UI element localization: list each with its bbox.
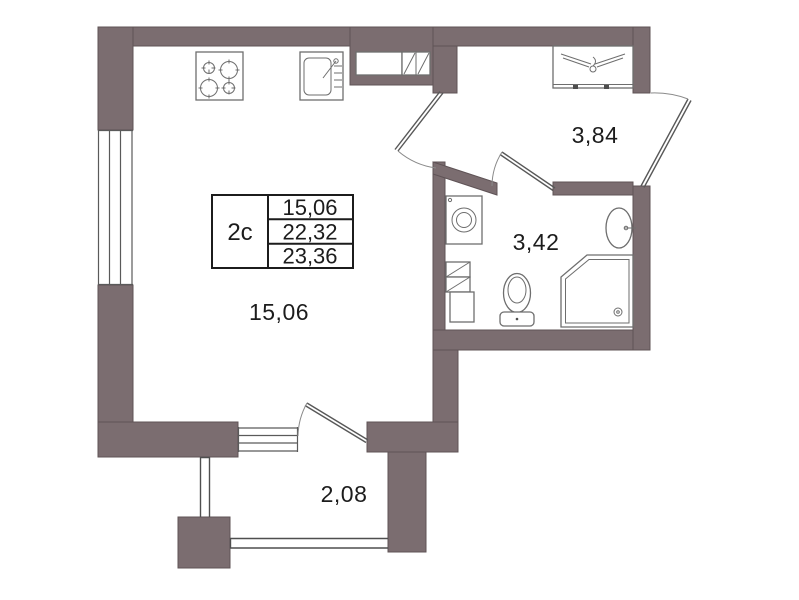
living-room-area-label: 15,06 — [249, 299, 309, 325]
toilet-button — [516, 318, 519, 321]
wardrobe — [553, 46, 633, 89]
hallway-area-label: 3,84 — [572, 122, 619, 148]
floor-plan: 2с 15,06 22,32 23,36 15,06 3,84 3,42 2,0… — [0, 0, 799, 600]
shaft-box — [450, 292, 474, 322]
sink-icon — [300, 52, 343, 100]
wall-niche — [356, 52, 402, 75]
wall-bathroom-top — [553, 182, 633, 195]
wardrobe-body — [553, 46, 633, 88]
bathroom-area-label: 3,42 — [513, 229, 560, 255]
washing-machine-body — [446, 196, 482, 244]
balcony-area-label: 2,08 — [321, 481, 368, 507]
wall-bottom-left — [98, 422, 238, 457]
wall-pillar — [178, 517, 230, 568]
stove-body — [196, 52, 243, 100]
washing-machine-icon — [446, 196, 482, 244]
legend-area-living: 15,06 — [282, 195, 337, 220]
stove-icon — [196, 52, 243, 100]
wall-balcony-right — [388, 452, 426, 552]
legend-unit-label: 2с — [227, 219, 252, 246]
wall-bathroom-right — [633, 186, 650, 350]
wall-left-upper — [98, 27, 133, 130]
floor-plan-svg: 2с 15,06 22,32 23,36 15,06 3,84 3,42 2,0… — [0, 0, 799, 600]
legend-area-total: 22,32 — [282, 220, 337, 245]
wall-bathroom-bottom — [433, 330, 650, 350]
wall-top-right-corner — [633, 27, 650, 93]
kitchen-niche-and-vent — [356, 52, 430, 75]
wall-kitchen-hallway — [433, 46, 457, 93]
bathroom-vent-shaft — [446, 262, 474, 322]
legend-area-overall: 23,36 — [282, 244, 337, 269]
legend-table: 2с 15,06 22,32 23,36 — [212, 195, 353, 269]
wall-balcony-door-pier — [367, 422, 458, 452]
wardrobe-foot — [604, 85, 609, 89]
wall-room-right-upper — [433, 162, 445, 350]
wardrobe-foot — [573, 85, 578, 89]
